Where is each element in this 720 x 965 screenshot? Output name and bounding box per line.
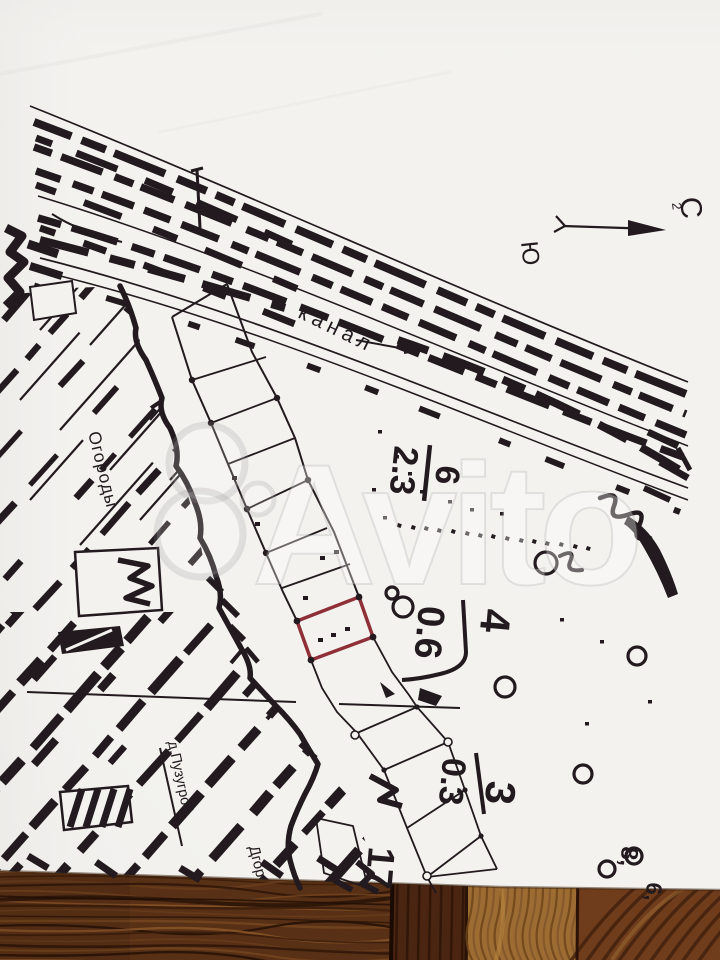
svg-text:6,: 6, bbox=[640, 882, 667, 902]
svg-text:3: 3 bbox=[476, 779, 525, 806]
svg-text:Ю: Ю bbox=[515, 240, 544, 267]
svg-text:0.3: 0.3 bbox=[431, 756, 473, 806]
svg-text:Avito: Avito bbox=[252, 429, 638, 621]
svg-text:17: 17 bbox=[356, 845, 402, 891]
svg-text:8,: 8, bbox=[614, 845, 643, 867]
